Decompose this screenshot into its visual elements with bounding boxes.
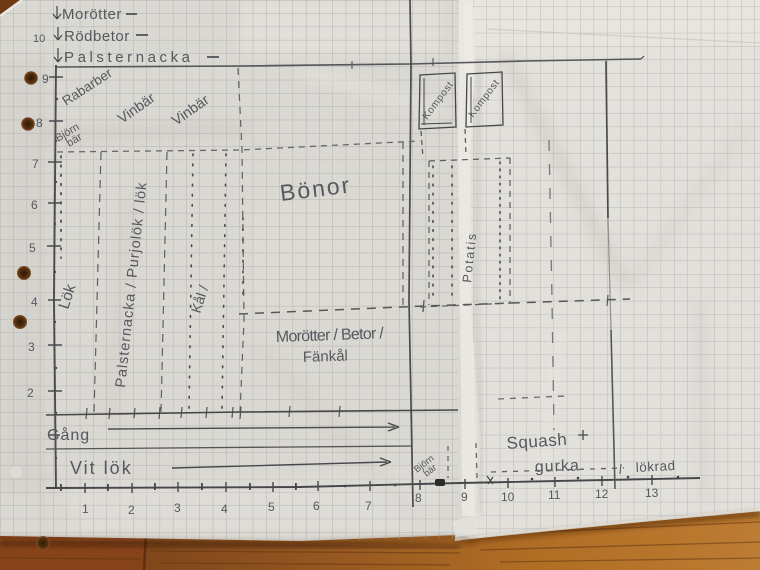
svg-text:1: 1 bbox=[82, 502, 89, 516]
svg-text:Palsternacka: Palsternacka bbox=[64, 49, 191, 66]
svg-text:4: 4 bbox=[31, 295, 38, 309]
svg-text:Rödbetor: Rödbetor bbox=[64, 28, 130, 45]
svg-text:5: 5 bbox=[29, 241, 36, 255]
svg-text:12: 12 bbox=[595, 487, 609, 501]
svg-text:2: 2 bbox=[128, 503, 135, 517]
svg-text:gurka: gurka bbox=[535, 457, 581, 476]
svg-text:3: 3 bbox=[174, 501, 181, 515]
svg-text:13: 13 bbox=[645, 486, 659, 500]
svg-text:Vit lök: Vit lök bbox=[70, 458, 133, 478]
svg-text:lökrad: lökrad bbox=[635, 458, 676, 475]
svg-text:4: 4 bbox=[221, 502, 228, 516]
svg-text:8: 8 bbox=[36, 116, 43, 130]
svg-text:9: 9 bbox=[461, 490, 468, 504]
svg-text:6: 6 bbox=[31, 198, 38, 212]
svg-text:7: 7 bbox=[365, 499, 372, 513]
svg-text:Morötter: Morötter bbox=[62, 6, 122, 23]
svg-text:8: 8 bbox=[415, 491, 422, 505]
svg-text:9: 9 bbox=[42, 72, 49, 86]
svg-text:3: 3 bbox=[28, 340, 35, 354]
svg-text:6: 6 bbox=[313, 499, 320, 513]
svg-text:10: 10 bbox=[501, 490, 515, 504]
svg-text:10: 10 bbox=[33, 33, 45, 45]
svg-text:5: 5 bbox=[268, 500, 275, 514]
svg-text:Fänkål: Fänkål bbox=[303, 347, 349, 366]
svg-text:Gång: Gång bbox=[47, 426, 90, 444]
svg-text:7: 7 bbox=[32, 157, 39, 171]
svg-text:11: 11 bbox=[548, 488, 561, 502]
svg-text:2: 2 bbox=[27, 386, 34, 400]
